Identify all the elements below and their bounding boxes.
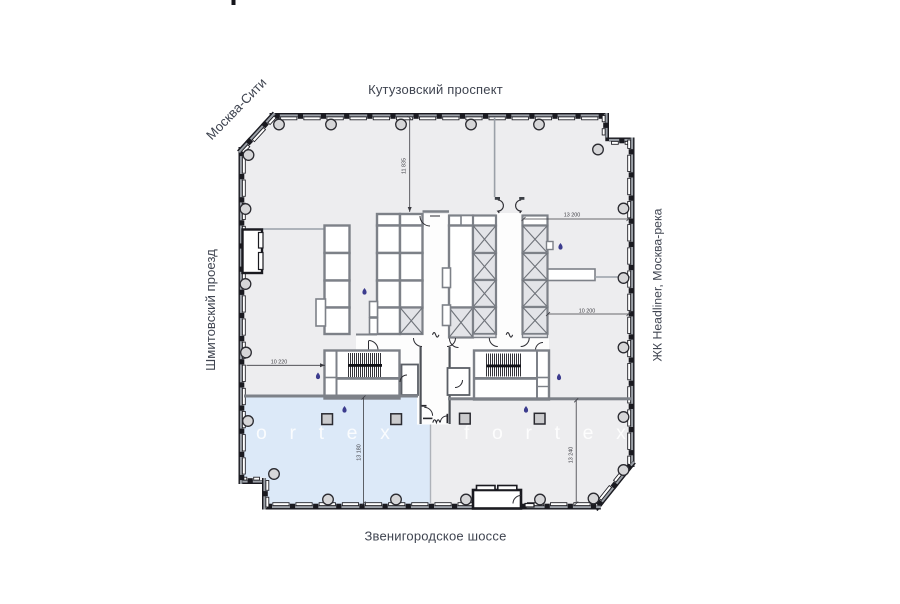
svg-text:13 180: 13 180 xyxy=(357,444,363,461)
svg-text:Звенигородское шоссе: Звенигородское шоссе xyxy=(364,529,506,544)
svg-text:11 835: 11 835 xyxy=(402,158,408,174)
svg-text:10 220: 10 220 xyxy=(271,360,288,366)
svg-text:Шмитовский проезд: Шмитовский проезд xyxy=(203,249,218,371)
svg-text:13 240: 13 240 xyxy=(569,447,575,464)
svg-text:f o r t e x: f o r t e x xyxy=(464,422,634,444)
svg-text:13 200: 13 200 xyxy=(564,213,581,219)
svg-text:10 200: 10 200 xyxy=(579,308,596,314)
svg-text:ЖК Headliner, Москва-река: ЖК Headliner, Москва-река xyxy=(651,208,665,361)
svg-text:Кутузовский проспект: Кутузовский проспект xyxy=(368,82,503,97)
svg-text:o r t e x: o r t e x xyxy=(256,422,398,444)
